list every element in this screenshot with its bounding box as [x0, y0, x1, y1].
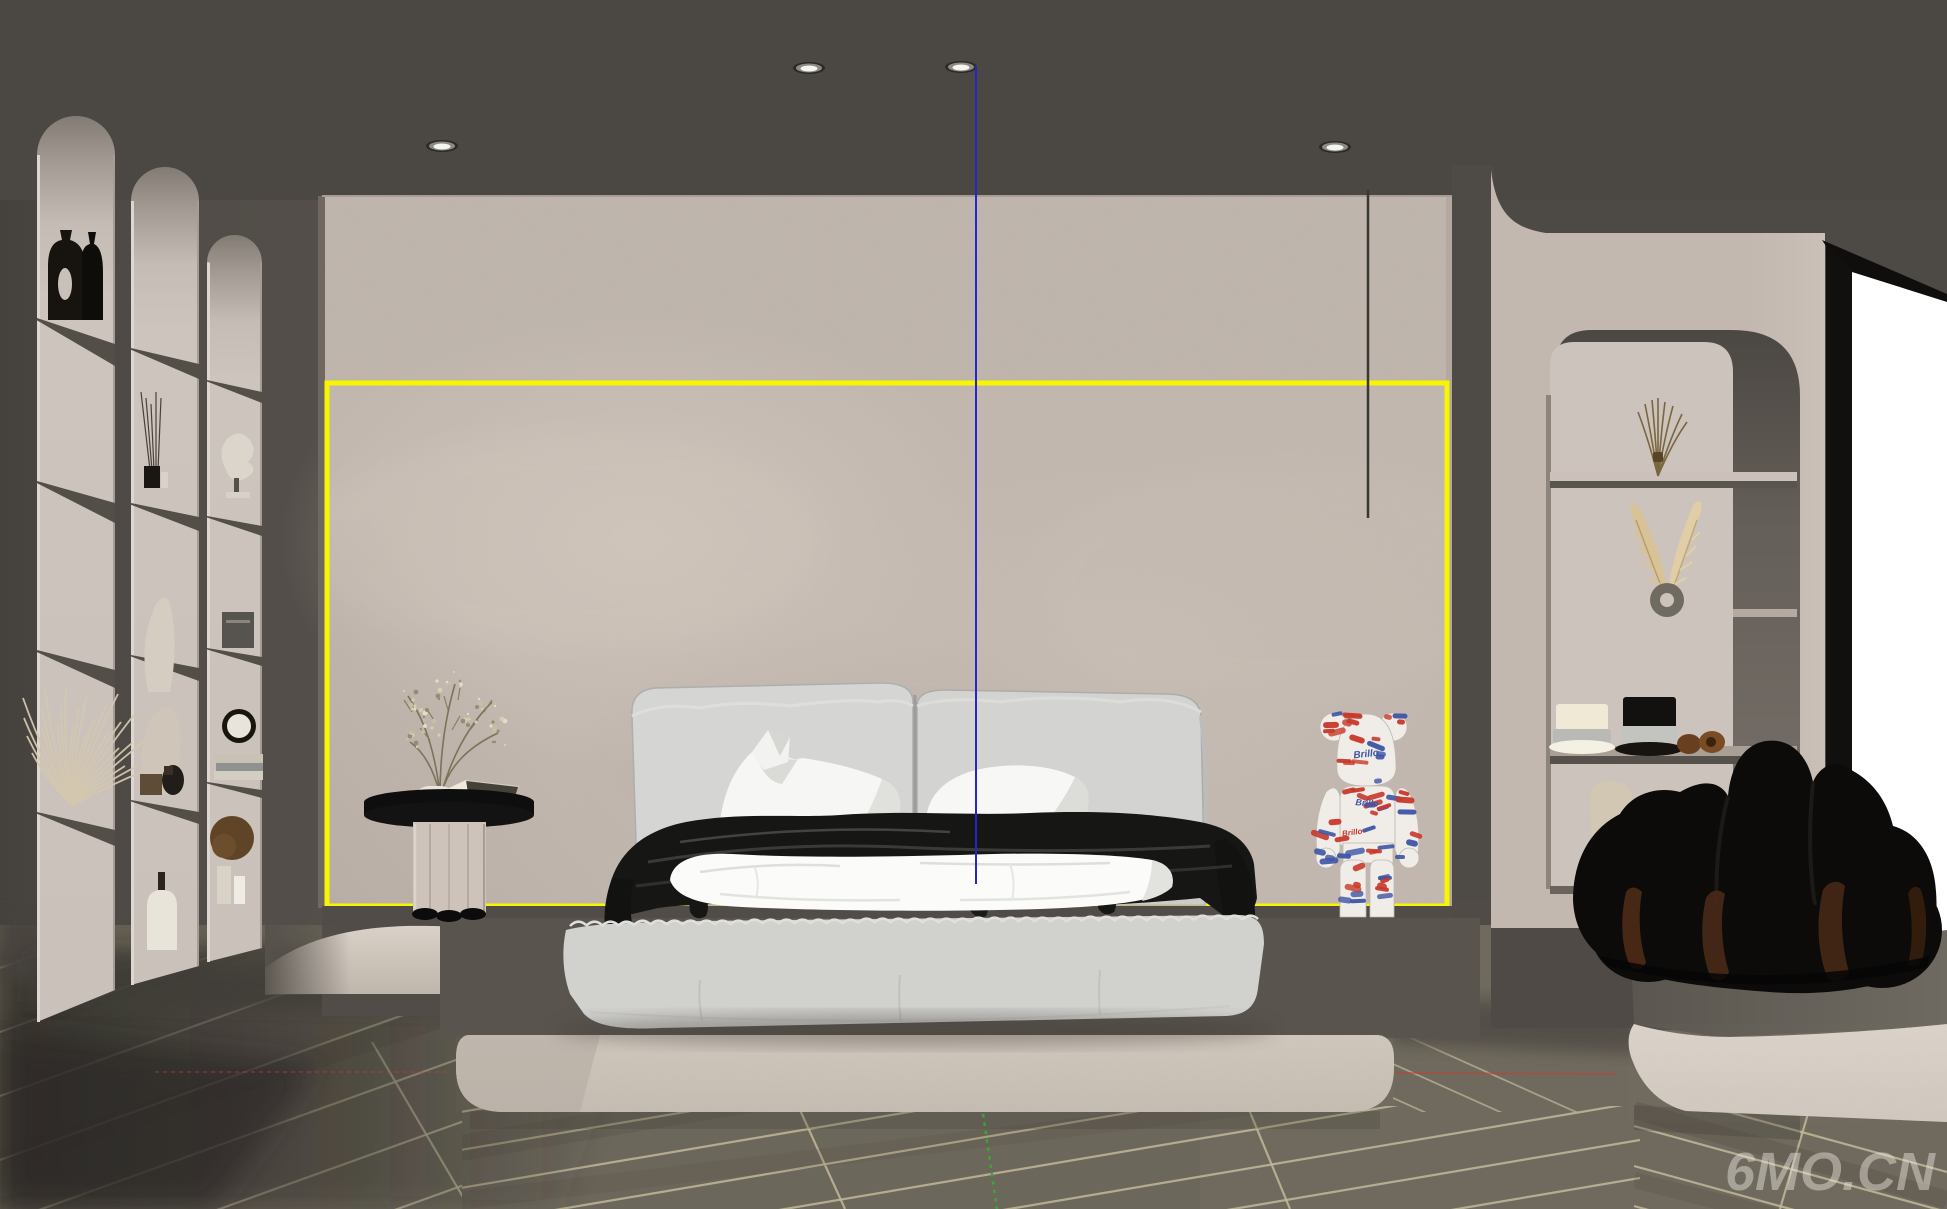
svg-text:6MO.CN: 6MO.CN — [1725, 1142, 1936, 1202]
svg-text:Brillo: Brillo — [1355, 797, 1379, 809]
